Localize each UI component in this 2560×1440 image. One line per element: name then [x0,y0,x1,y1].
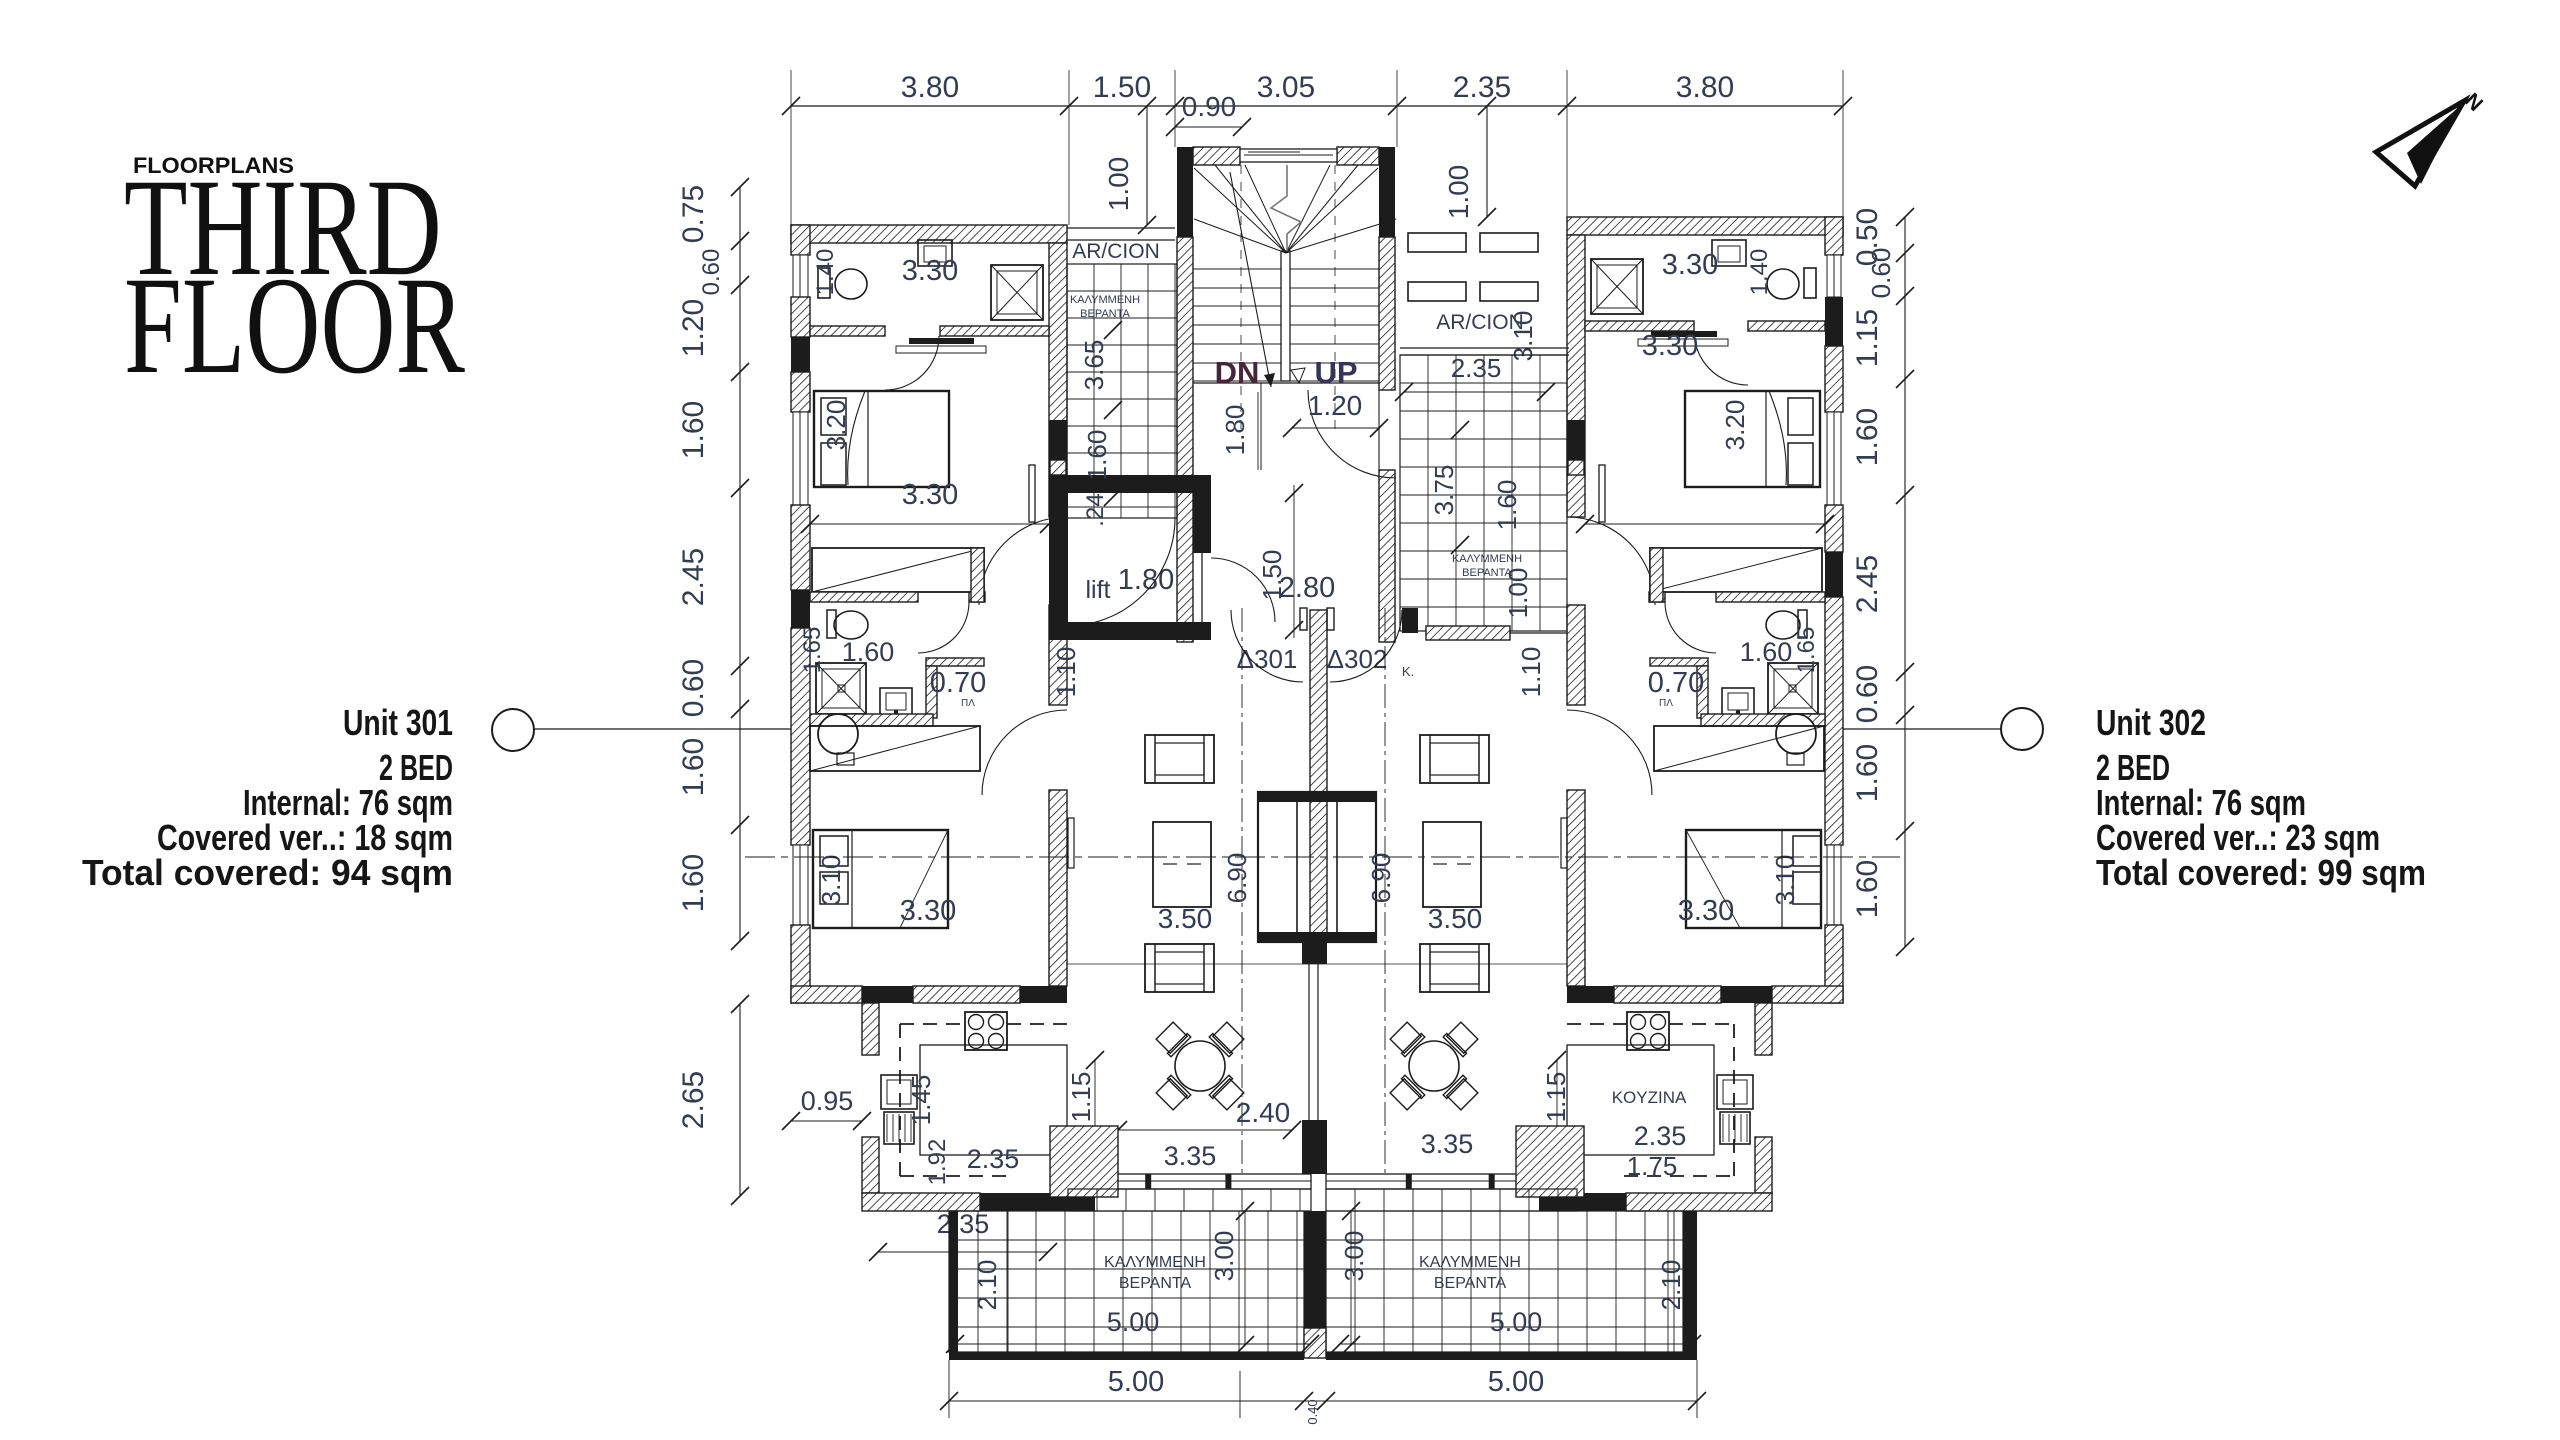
svg-text:2.45: 2.45 [677,548,710,606]
svg-text:1.80: 1.80 [1220,405,1250,456]
svg-text:3.80: 3.80 [901,71,959,104]
svg-text:UP: UP [1314,355,1357,390]
svg-text:1.60: 1.60 [1851,860,1884,918]
svg-text:AR/CION: AR/CION [1072,240,1160,263]
svg-text:1.20: 1.20 [1308,390,1363,421]
svg-text:5.00: 5.00 [1488,1366,1544,1398]
svg-text:Unit 301: Unit 301 [343,702,453,743]
svg-text:0.95: 0.95 [801,1086,854,1116]
svg-text:1.60: 1.60 [842,637,895,667]
svg-text:0.60: 0.60 [1851,665,1884,723]
svg-text:3.30: 3.30 [900,895,956,927]
svg-text:1.60: 1.60 [1851,408,1884,466]
svg-text:1.40: 1.40 [1746,249,1773,296]
svg-text:1.00: 1.00 [1103,157,1134,212]
svg-text:KOYZINA: KOYZINA [1612,1088,1687,1107]
svg-text:ΠΛ: ΠΛ [1659,698,1673,709]
svg-text:3.10: 3.10 [1508,311,1538,362]
svg-text:1.60: 1.60 [1851,744,1884,802]
svg-text:K.: K. [1402,664,1414,679]
svg-text:FLOOR: FLOOR [124,247,465,402]
svg-text:1.50: 1.50 [1093,71,1151,104]
svg-text:Δ301: Δ301 [1237,644,1298,674]
svg-text:0.60: 0.60 [1866,248,1896,299]
svg-text:2.65: 2.65 [677,1071,710,1129]
svg-text:0.75: 0.75 [677,185,710,243]
svg-text:3.35: 3.35 [1164,1141,1217,1171]
svg-text:3.10: 3.10 [1770,855,1800,906]
svg-text:1.65: 1.65 [1793,627,1820,674]
svg-text:ΠΛ: ΠΛ [961,698,975,709]
svg-text:5.00: 5.00 [1107,1307,1160,1337]
svg-text:DN: DN [1215,355,1260,390]
svg-text:1.60: 1.60 [1082,430,1112,481]
svg-text:3.30: 3.30 [1662,249,1718,281]
svg-text:0.70: 0.70 [930,667,986,699]
svg-text:2.40: 2.40 [1236,1097,1291,1128]
svg-text:1.60: 1.60 [677,738,710,796]
svg-text:2.10: 2.10 [1656,1260,1686,1311]
svg-text:ΚΑΛΥΜΜΕΝΗ: ΚΑΛΥΜΜΕΝΗ [1452,553,1522,565]
svg-text:ΚΑΛΥΜΜΕΝΗ: ΚΑΛΥΜΜΕΝΗ [1104,1254,1206,1271]
svg-text:0.40: 0.40 [1305,1399,1320,1424]
svg-text:2.35: 2.35 [1451,353,1502,383]
svg-text:3.30: 3.30 [1642,330,1698,362]
svg-text:lift: lift [1086,576,1111,604]
svg-text:2.80: 2.80 [1279,572,1335,604]
svg-text:0.60: 0.60 [698,249,725,296]
svg-text:3.30: 3.30 [902,479,958,511]
svg-text:Total covered: 99 sqm: Total covered: 99 sqm [2096,852,2426,893]
svg-text:1.60: 1.60 [1492,480,1522,531]
svg-text:Unit 302: Unit 302 [2096,702,2206,743]
svg-text:ΚΑΛΥΜΜΕΝΗ: ΚΑΛΥΜΜΕΝΗ [1070,294,1140,306]
svg-text:Total covered: 94 sqm: Total covered: 94 sqm [82,852,453,893]
svg-text:1.92: 1.92 [924,1139,951,1186]
svg-text:ΒΕΡΑΝΤΑ: ΒΕΡΑΝΤΑ [1434,1275,1507,1292]
svg-text:ΚΑΛΥΜΜΕΝΗ: ΚΑΛΥΜΜΕΝΗ [1419,1254,1521,1271]
svg-text:1.40: 1.40 [812,249,839,296]
svg-text:1.00: 1.00 [1503,568,1533,619]
svg-text:3.65: 3.65 [1079,340,1109,391]
svg-text:ΒΕΡΑΝΤΑ: ΒΕΡΑΝΤΑ [1119,1275,1192,1292]
svg-text:3.50: 3.50 [1428,903,1483,934]
svg-text:ΒΕΡΑΝΤΑ: ΒΕΡΑΝΤΑ [1080,308,1130,320]
svg-text:1.20: 1.20 [677,299,710,357]
svg-text:3.35: 3.35 [1421,1129,1474,1159]
svg-text:3.00: 3.00 [1339,1231,1369,1282]
svg-text:1.65: 1.65 [799,627,826,674]
svg-text:.24: .24 [1082,493,1109,526]
svg-text:1.60: 1.60 [1740,637,1793,667]
svg-text:2.35: 2.35 [967,1144,1020,1174]
svg-text:3.10: 3.10 [816,855,846,906]
svg-text:0.70: 0.70 [1648,667,1704,699]
svg-text:1.10: 1.10 [1516,647,1546,698]
svg-text:5.00: 5.00 [1490,1307,1543,1337]
svg-text:2.35: 2.35 [937,1209,990,1239]
svg-text:6.90: 6.90 [1366,853,1396,904]
svg-text:6.90: 6.90 [1222,853,1252,904]
svg-text:1.60: 1.60 [677,854,710,912]
svg-text:5.00: 5.00 [1108,1366,1164,1398]
svg-text:0.60: 0.60 [677,659,710,717]
svg-text:3.20: 3.20 [1720,400,1750,451]
svg-text:3.30: 3.30 [1678,895,1734,927]
svg-text:2.10: 2.10 [972,1260,1002,1311]
svg-text:1.60: 1.60 [677,401,710,459]
svg-text:3.20: 3.20 [821,400,851,451]
svg-text:3.05: 3.05 [1257,71,1315,104]
svg-text:1.15: 1.15 [1066,1072,1096,1123]
svg-text:1.00: 1.00 [1443,165,1474,220]
svg-text:Δ302: Δ302 [1327,644,1388,674]
svg-text:1.75: 1.75 [1627,1151,1678,1181]
svg-text:3.75: 3.75 [1429,465,1459,516]
svg-text:3.00: 3.00 [1209,1231,1239,1282]
svg-text:0.90: 0.90 [1182,91,1237,122]
svg-text:1.15: 1.15 [1851,309,1884,367]
svg-text:2.35: 2.35 [1634,1121,1687,1151]
svg-text:2.35: 2.35 [1453,71,1511,104]
svg-text:1.10: 1.10 [1051,647,1081,698]
svg-text:3.30: 3.30 [902,255,958,287]
svg-text:3.50: 3.50 [1158,903,1213,934]
svg-text:1.45: 1.45 [906,1075,936,1126]
svg-text:3.80: 3.80 [1676,71,1734,104]
svg-text:2.45: 2.45 [1851,555,1884,613]
